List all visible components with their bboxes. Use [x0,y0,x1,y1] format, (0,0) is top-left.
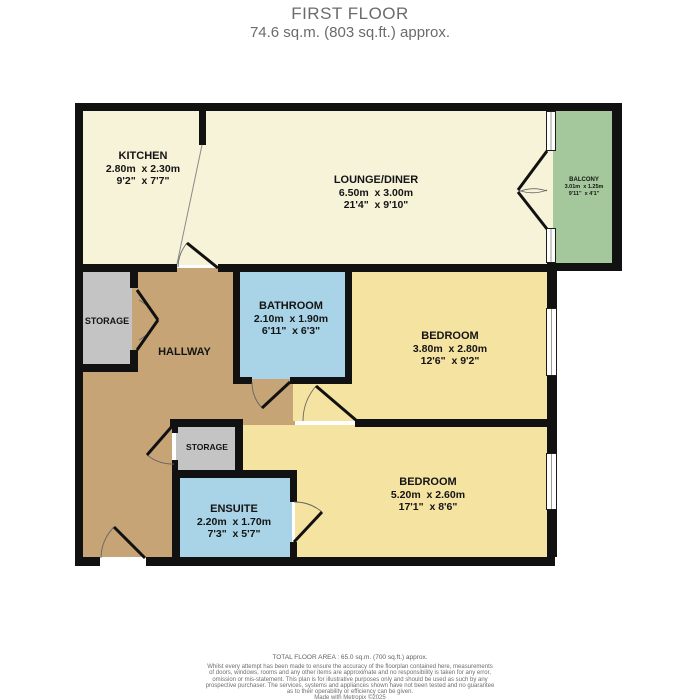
room-dims-imperial: 7'3" x 5'7" [176,528,292,540]
room-dims-imperial: 9'2" x 7'7" [78,175,208,187]
wall-segment [172,427,178,433]
wall-segment [290,542,297,557]
bedroom-divider-wall [355,419,557,427]
room-name: BALCONY [551,177,617,184]
room-dims-metric: 2.80m x 2.30m [78,163,208,175]
credit-line: Made with Metropix ©2025 [0,695,700,700]
wall-segment [130,272,138,288]
room-name: BEDROOM [330,476,526,489]
balcony-window-top [546,111,556,151]
room-area-bedroom1-entry [293,382,352,421]
room-name: BEDROOM [357,330,543,343]
room-area-hallway-corridor [237,377,295,427]
room-dims-metric: 2.10m x 1.90m [233,313,349,325]
room-dims-imperial: 12'6" x 9'2" [357,355,543,367]
page-subtitle: 74.6 sq.m. (803 sq.ft.) approx. [0,24,700,41]
room-name: STORAGE [177,442,237,452]
bedroom1-window [546,308,557,376]
kitchen-divider-stub [199,111,206,145]
exterior-wall-bottom [75,557,555,566]
bathroom-label: BATHROOM 2.10m x 1.90m 6'11" x 6'3" [233,300,349,337]
room-area-hallway-entry [82,420,172,559]
ensuite-wall-top [172,470,297,478]
exterior-wall-top [75,103,622,111]
bedroom1-label: BEDROOM 3.80m x 2.80m 12'6" x 9'2" [357,330,543,367]
room-name: LOUNGE/DINER [290,174,462,187]
room-name: HALLWAY [127,346,242,359]
room-dims-imperial: 21'4" x 9'10" [290,199,462,211]
bedroom2-label: BEDROOM 5.20m x 2.60m 17'1" x 8'6" [330,476,526,513]
balcony-window-bottom [546,228,556,263]
entry-door-opening [100,557,146,566]
room-dims-imperial: 6'11" x 6'3" [233,325,349,337]
ensuite-label: ENSUITE 2.20m x 1.70m 7'3" x 5'7" [176,503,292,540]
wall-segment [82,264,177,272]
room-name: ENSUITE [176,503,292,516]
room-dims-metric: 3.80m x 2.80m [357,343,543,355]
room-dims-metric: 6.50m x 3.00m [290,187,462,199]
lounge-label: LOUNGE/DINER 6.50m x 3.00m 21'4" x 9'10" [290,174,462,211]
room-name: KITCHEN [78,150,208,163]
storage2-label: STORAGE [177,442,237,452]
room-name: BATHROOM [233,300,349,313]
wall-segment [233,377,252,384]
page-title: FIRST FLOOR [0,4,700,24]
balcony-label: BALCONY 3.01m x 1.25m 9'11" x 4'1" [551,177,617,197]
disclaimer: Whilst every attempt has been made to en… [0,664,700,700]
storage1-label: STORAGE [79,316,135,326]
balcony-wall-bottom [547,263,622,271]
room-name: STORAGE [79,316,135,326]
room-dims-imperial: 17'1" x 8'6" [330,501,526,513]
storage2-wall-top [170,419,243,427]
wall-segment [290,377,352,384]
wall-segment [290,470,297,502]
room-dims-imperial: 9'11" x 4'1" [551,191,617,198]
wall-segment [75,364,138,372]
wall-segment [218,264,547,272]
bedroom2-window [546,453,557,510]
floorplan-page: FIRST FLOOR 74.6 sq.m. (803 sq.ft.) appr… [0,0,700,700]
kitchen-label: KITCHEN 2.80m x 2.30m 9'2" x 7'7" [78,150,208,187]
hallway-label: HALLWAY [127,346,242,359]
room-dims-metric: 5.20m x 2.60m [330,489,526,501]
room-dims-metric: 2.20m x 1.70m [176,516,292,528]
total-floor-area: TOTAL FLOOR AREA : 65.0 sq.m. (700 sq.ft… [0,654,700,661]
